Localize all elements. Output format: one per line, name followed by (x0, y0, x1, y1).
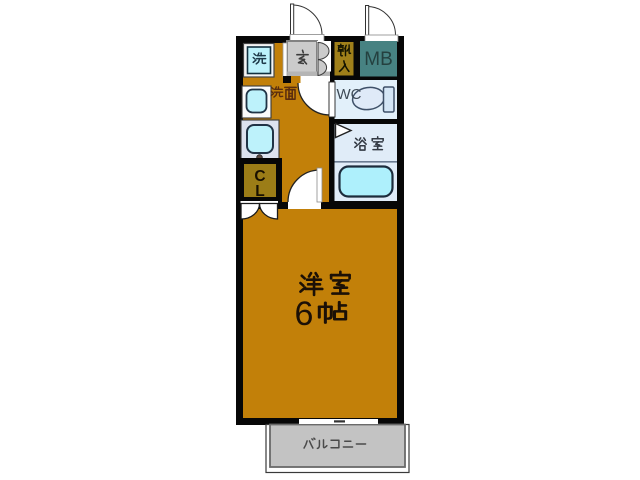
svg-text:WC: WC (337, 86, 362, 103)
svg-text:L: L (255, 183, 264, 200)
svg-text:6: 6 (295, 295, 314, 333)
svg-text:MB: MB (364, 49, 393, 70)
